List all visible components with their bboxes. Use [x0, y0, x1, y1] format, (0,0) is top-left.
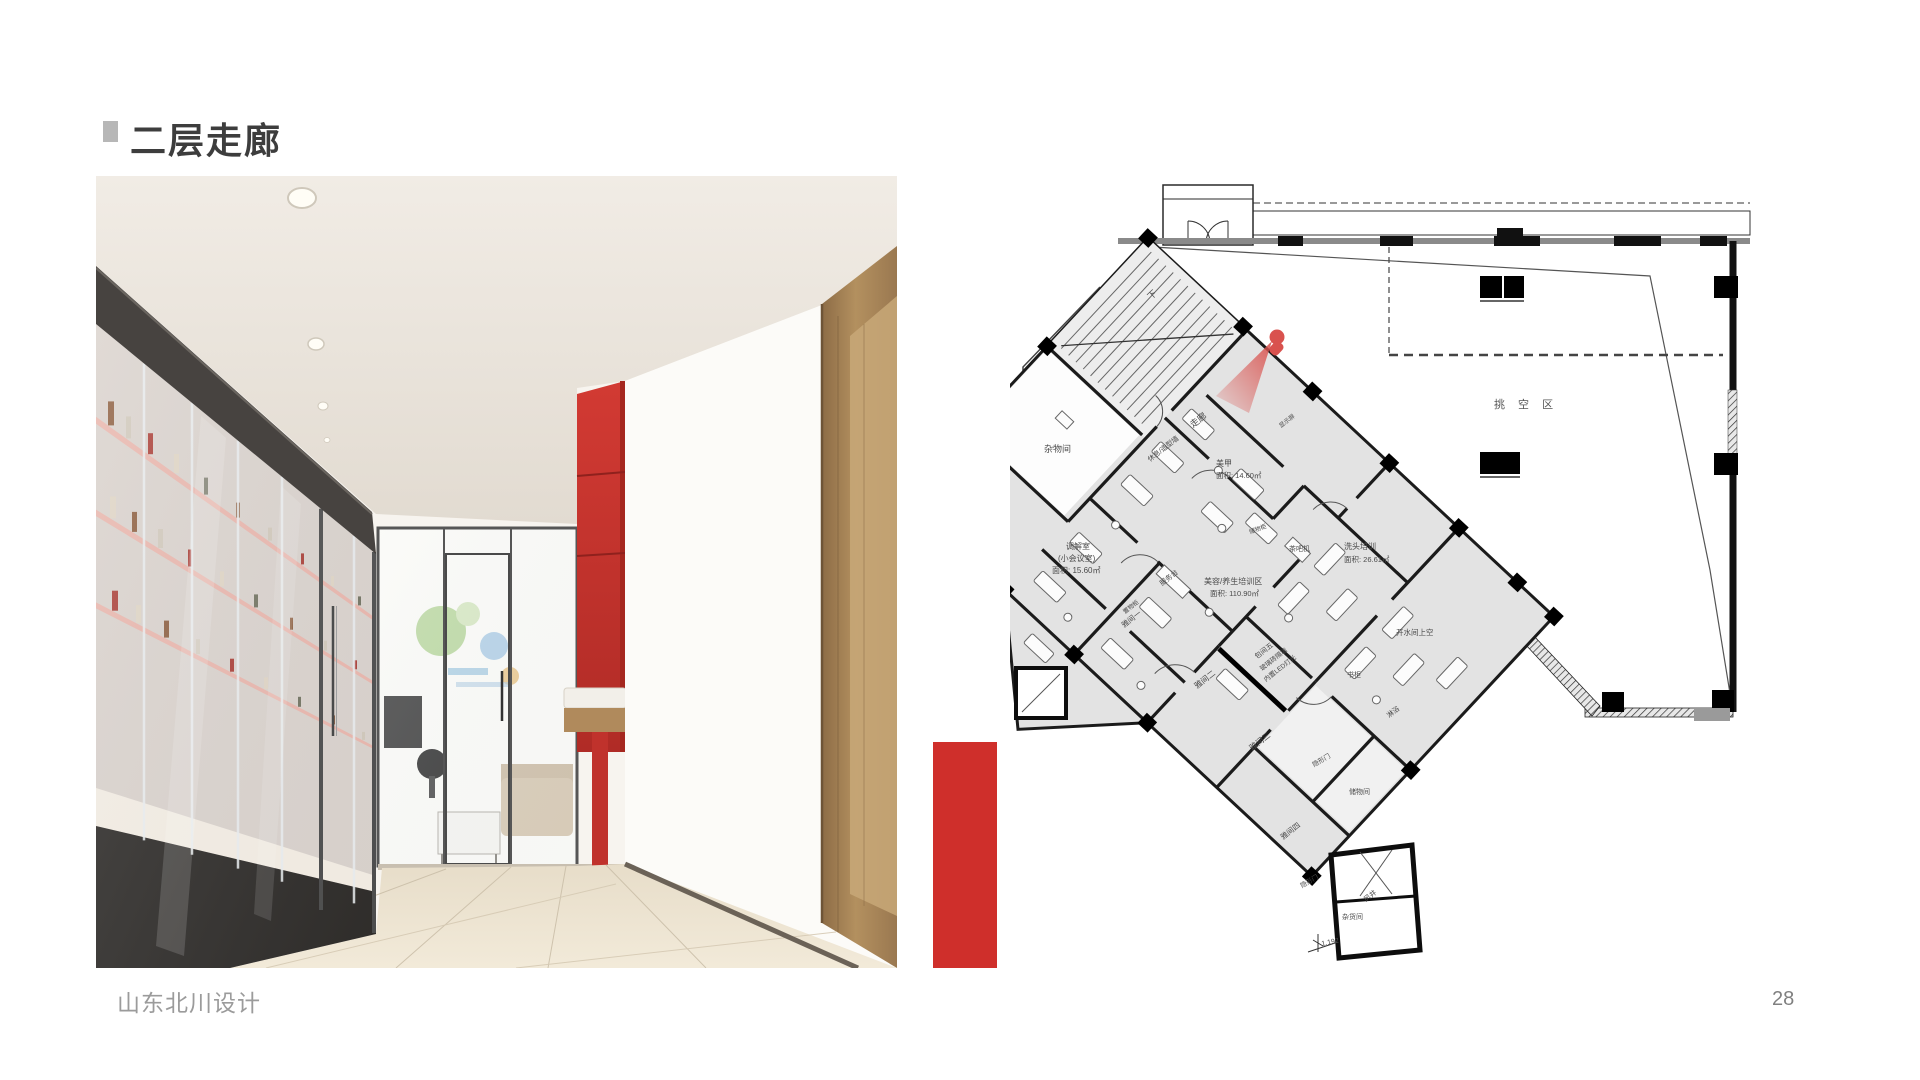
niche-bench-base: [564, 708, 626, 732]
plan-label: 美甲: [1216, 458, 1232, 468]
plan-label: 杂物间: [1044, 443, 1071, 454]
page-number: 28: [1772, 988, 1794, 1011]
plan-label: 调解室: [1066, 541, 1090, 551]
corridor-render-photo: [96, 176, 897, 968]
plan-label: 美容/养生培训区: [1204, 576, 1262, 586]
plan-west-annex: [1016, 668, 1066, 718]
red-accent-bar: [933, 742, 997, 968]
floor-plan: 挑 空 区 下杂物间走廊休息/造型墙显示屏美甲面积: 14.60㎡调解室(小会议…: [1010, 170, 1770, 980]
footer-company: 山东北川设计: [117, 984, 261, 1018]
plan-label: 面积: 14.60㎡: [1216, 470, 1262, 480]
plan-label: 面积: 26.61㎡: [1344, 554, 1390, 564]
plan-label: 面积: 110.90㎡: [1210, 588, 1260, 598]
plan-building: [1010, 228, 1564, 949]
wood-door-frame: [822, 246, 897, 968]
plan-label: 储物间: [1349, 787, 1370, 796]
plan-label: 茶吧机: [1289, 544, 1310, 553]
plan-label: 杂货间: [1342, 912, 1363, 921]
plan-top-structure: [1118, 185, 1750, 245]
title-row: 二层走廊: [103, 112, 282, 164]
page-title: 二层走廊: [130, 112, 282, 164]
void-area-label: 挑 空 区: [1494, 397, 1558, 411]
title-bullet-square: [103, 121, 118, 142]
presentation-slide: 二层走廊: [0, 0, 1920, 1080]
niche-bench-cushion: [564, 688, 626, 708]
plan-se-extension: [1331, 845, 1420, 958]
void-columns: [1480, 276, 1524, 477]
plan-label: 书柜: [1347, 670, 1361, 679]
plan-label: 洗头培训: [1344, 541, 1376, 551]
entrance-vestibule: [1163, 185, 1253, 245]
plan-label: (小会议室): [1058, 553, 1096, 563]
plan-label: 开水间上空: [1396, 627, 1434, 637]
plan-label: 面积: 15.60㎡: [1052, 565, 1100, 575]
